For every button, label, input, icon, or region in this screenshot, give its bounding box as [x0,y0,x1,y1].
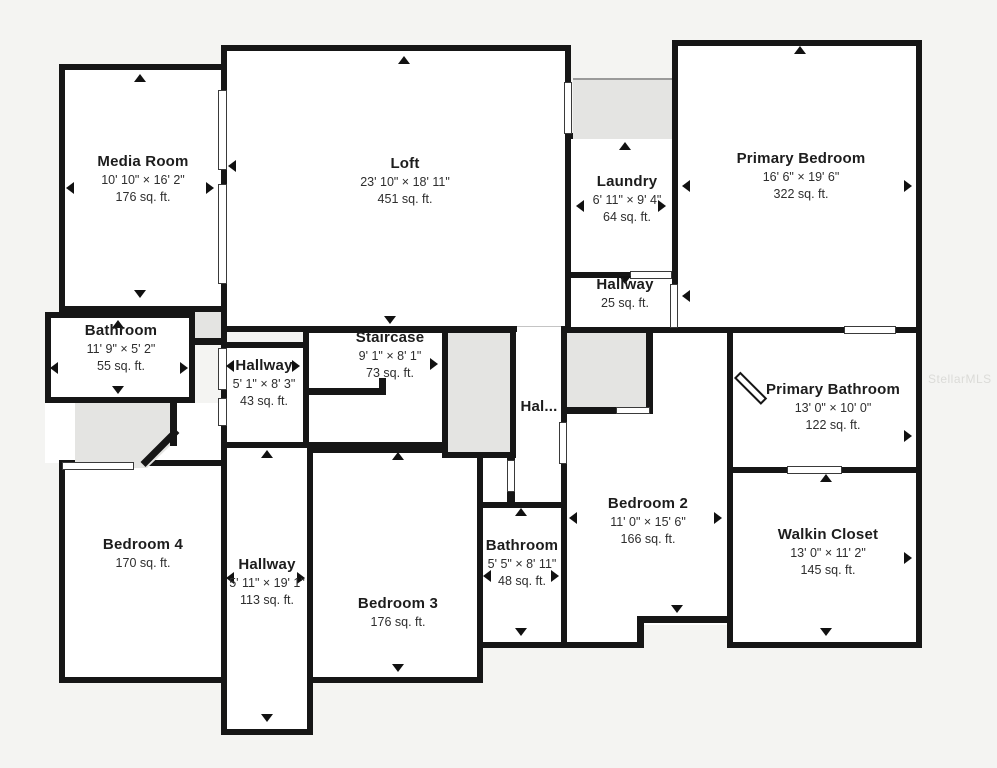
measure-arrow-icon [112,386,124,394]
measure-arrow-icon [134,290,146,298]
window-marker [62,462,134,470]
measure-arrow-icon [794,46,806,54]
room-dims: 16' 6" × 19' 6" [737,170,866,184]
room-area: 122 sq. ft. [766,418,900,432]
measure-arrow-icon [820,628,832,636]
measure-arrow-icon [261,714,273,722]
room-area: 166 sq. ft. [608,532,688,546]
measure-arrow-icon [569,512,577,524]
room-dims: 13' 0" × 11' 2" [778,546,878,560]
room-label-primary-bathroom: Primary Bathroom 13' 0" × 10' 0" 122 sq.… [766,381,900,432]
window-marker [218,184,227,284]
room-area: 322 sq. ft. [737,187,866,201]
room-label-hal: Hal... [520,398,557,415]
room-label-media-room: Media Room 10' 10" × 16' 2" 176 sq. ft. [97,153,188,204]
wall-segment [646,333,653,412]
closet-above-laundry [573,78,672,139]
window-marker [844,326,896,334]
room-name: Walkin Closet [778,526,878,543]
measure-arrow-icon [904,430,912,442]
room-bedroom-4 [59,460,227,683]
understair-shade-a [75,403,173,445]
room-label-staircase: Staircase 9' 1" × 8' 1" 73 sq. ft. [356,329,425,380]
room-name: Bathroom [85,322,157,339]
stair-railing [379,378,386,395]
measure-arrow-icon [515,628,527,636]
room-label-loft: Loft 23' 10" × 18' 11" 451 sq. ft. [360,155,450,206]
room-dims: 10' 10" × 16' 2" [97,173,188,187]
room-name: Hallway [233,357,296,374]
floor-plan: Media Room 10' 10" × 16' 2" 176 sq. ft. … [0,0,997,768]
room-name: Bedroom 3 [358,595,438,612]
room-name: Bathroom [486,537,558,554]
measure-arrow-icon [134,74,146,82]
window-marker [670,284,678,328]
measure-arrow-icon [714,512,722,524]
measure-arrow-icon [66,182,74,194]
measure-arrow-icon [515,508,527,516]
room-label-hallway-lower: Hallway 5' 11" × 19' 1" 113 sq. ft. [229,556,305,607]
room-dims: 5' 5" × 8' 11" [486,557,558,571]
door-opening [517,326,561,335]
room-dims: 13' 0" × 10' 0" [766,401,900,415]
room-name: Hallway [596,276,653,293]
room-label-laundry: Laundry 6' 11" × 9' 4" 64 sq. ft. [593,173,662,224]
room-area: 176 sq. ft. [358,615,438,629]
measure-arrow-icon [50,362,58,374]
room-name: Hallway [229,556,305,573]
watermark: StellarMLS [928,372,992,386]
room-area: 73 sq. ft. [356,366,425,380]
window-marker [218,398,227,426]
measure-arrow-icon [576,200,584,212]
room-label-bedroom-2: Bedroom 2 11' 0" × 15' 6" 166 sq. ft. [608,495,688,546]
room-label-hallway-upper: Hallway 25 sq. ft. [596,276,653,310]
room-dims: 23' 10" × 18' 11" [360,175,450,189]
room-dims: 9' 1" × 8' 1" [356,349,425,363]
measure-arrow-icon [430,358,438,370]
measure-arrow-icon [820,474,832,482]
measure-arrow-icon [398,56,410,64]
measure-arrow-icon [392,664,404,672]
measure-arrow-icon [384,316,396,324]
room-name: Primary Bathroom [766,381,900,398]
room-label-bedroom-4: Bedroom 4 170 sq. ft. [103,536,183,570]
measure-arrow-icon [206,182,214,194]
bathroom-notch [195,312,221,340]
measure-arrow-icon [904,552,912,564]
room-area: 176 sq. ft. [97,190,188,204]
wall-segment [637,620,644,648]
room-dims: 11' 9" × 5' 2" [85,342,157,356]
measure-arrow-icon [228,160,236,172]
measure-arrow-icon [682,290,690,302]
room-area: 43 sq. ft. [233,394,296,408]
room-area: 170 sq. ft. [103,556,183,570]
room-name: Media Room [97,153,188,170]
window-marker [218,90,227,170]
room-name: Staircase [356,329,425,346]
exterior-step [640,625,727,648]
room-label-bathroom-upper: Bathroom 11' 9" × 5' 2" 55 sq. ft. [85,322,157,373]
room-label-walkin-closet: Walkin Closet 13' 0" × 11' 2" 145 sq. ft… [778,526,878,577]
room-dims: 5' 1" × 8' 3" [233,377,296,391]
window-marker [559,422,567,464]
stair-railing [308,388,386,395]
measure-arrow-icon [671,605,683,613]
wall-segment [189,338,227,345]
room-dims: 6' 11" × 9' 4" [593,193,662,207]
window-marker [564,82,572,134]
room-label-bedroom-3: Bedroom 3 176 sq. ft. [358,595,438,629]
measure-arrow-icon [904,180,912,192]
room-area: 25 sq. ft. [596,296,653,310]
measure-arrow-icon [180,362,188,374]
room-area: 113 sq. ft. [229,593,305,607]
room-name: Loft [360,155,450,172]
wall-segment [637,616,733,623]
room-area: 64 sq. ft. [593,210,662,224]
window-marker [787,466,842,474]
room-name: Bedroom 2 [608,495,688,512]
room-area: 451 sq. ft. [360,192,450,206]
measure-arrow-icon [619,142,631,150]
room-label-primary-bedroom: Primary Bedroom 16' 6" × 19' 6" 322 sq. … [737,150,866,201]
room-area: 48 sq. ft. [486,574,558,588]
bedroom2-closet [567,333,650,410]
understair-closet [442,327,516,458]
room-name: Primary Bedroom [737,150,866,167]
window-marker [507,460,515,492]
room-dims: 11' 0" × 15' 6" [608,515,688,529]
room-name: Hal... [520,398,557,415]
room-name: Laundry [593,173,662,190]
room-label-bathroom-lower: Bathroom 5' 5" × 8' 11" 48 sq. ft. [486,537,558,588]
room-area: 145 sq. ft. [778,563,878,577]
window-marker [616,407,650,414]
measure-arrow-icon [682,180,690,192]
room-bedroom-3 [307,447,483,683]
room-label-hallway-mid: Hallway 5' 1" × 8' 3" 43 sq. ft. [233,357,296,408]
room-dims: 5' 11" × 19' 1" [229,576,305,590]
measure-arrow-icon [392,452,404,460]
room-name: Bedroom 4 [103,536,183,553]
room-area: 55 sq. ft. [85,359,157,373]
measure-arrow-icon [261,450,273,458]
